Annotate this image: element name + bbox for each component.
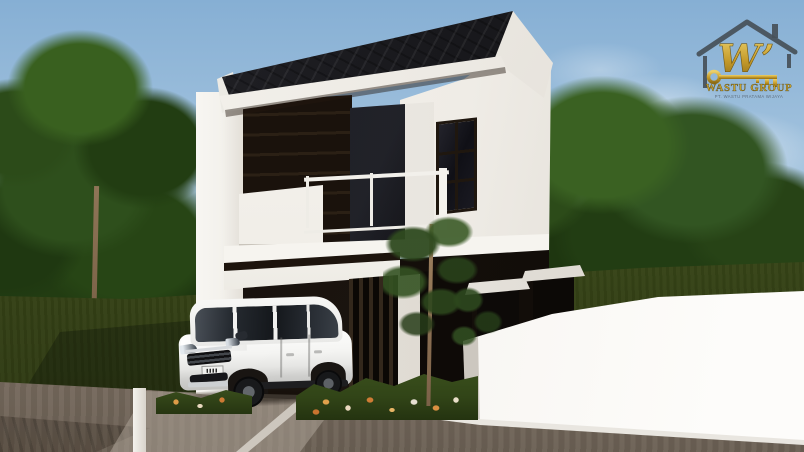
boundary-post [133,388,146,452]
ornamental-tree [383,216,489,408]
render-canvas: W’ WASTU GROUP PT. WASTU PRATAMA WIJAYA [0,0,804,452]
logo-graphic: W’ WASTU GROUP PT. WASTU PRATAMA WIJAYA [692,10,804,102]
railing-top-rail [304,170,449,182]
developer-logo: W’ WASTU GROUP PT. WASTU PRATAMA WIJAYA [692,10,804,102]
car-door-handle [286,353,294,356]
car-windows [195,304,339,342]
car-door-seam [308,335,310,377]
logo-tagline-text: PT. WASTU PRATAMA WIJAYA [715,94,783,99]
tree-foliage [383,216,489,408]
railing-post [306,176,309,228]
car-door-seam [280,338,282,378]
car-door-handle [314,350,322,353]
logo-monogram: W’ [718,36,775,81]
railing-post [370,173,373,226]
logo-brand-text: WASTU GROUP [706,83,793,94]
